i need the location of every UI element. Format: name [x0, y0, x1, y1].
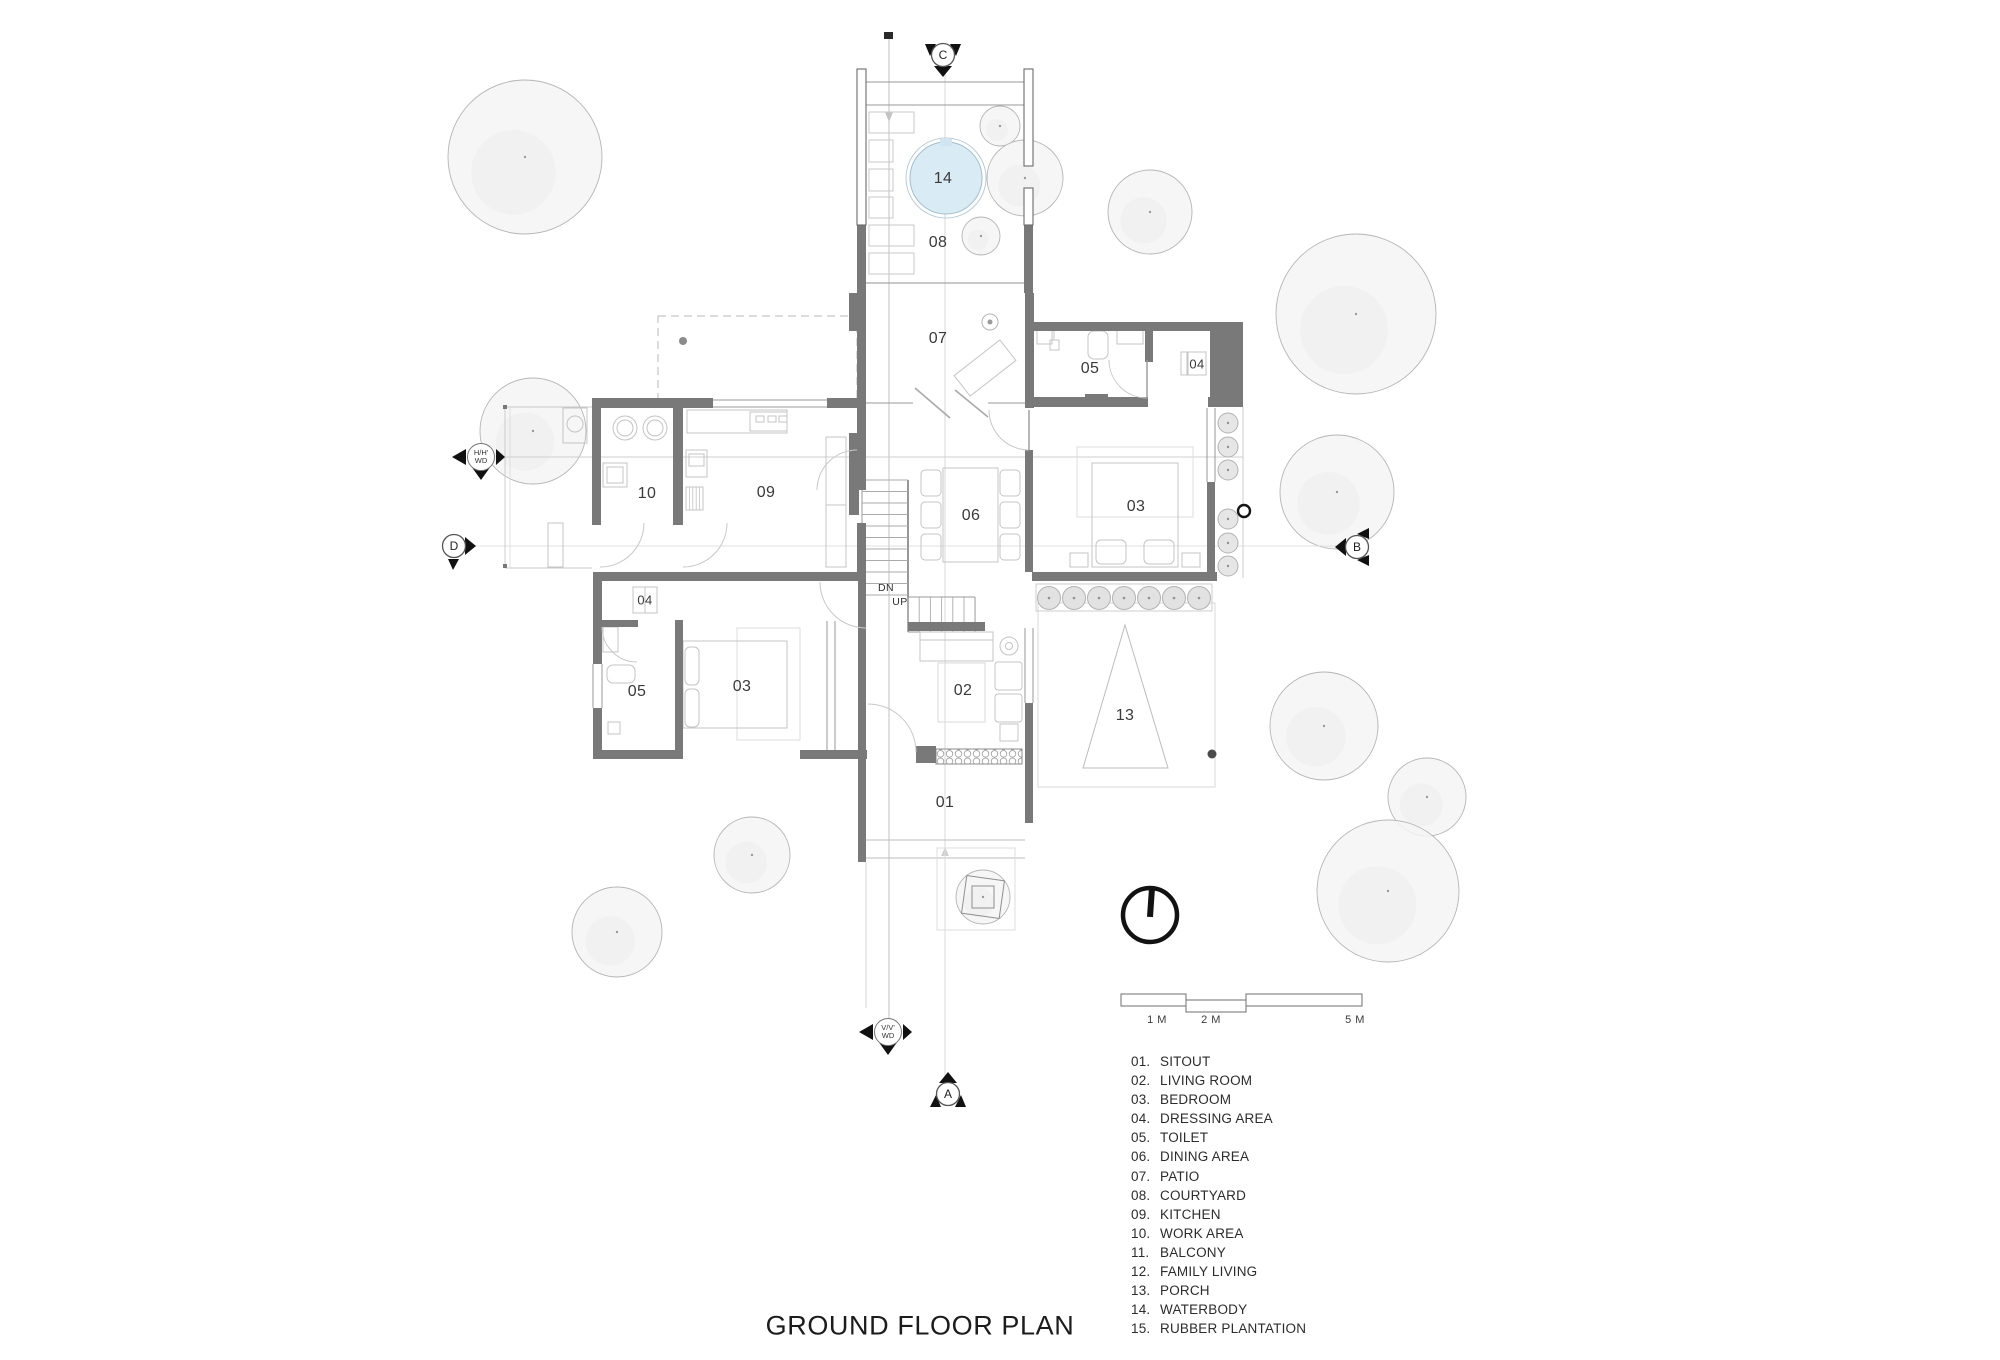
legend-item: 13.PORCH — [1131, 1281, 1306, 1300]
legend-item-label: COURTYARD — [1160, 1186, 1246, 1205]
tree-icon — [572, 887, 662, 977]
legend-item-number: 11. — [1131, 1243, 1160, 1262]
scale-bar — [1121, 994, 1362, 1012]
ref-marker-hh-line2: WD — [474, 457, 488, 465]
tree-icon — [1280, 435, 1394, 549]
legend-item-label: FAMILY LIVING — [1160, 1262, 1257, 1281]
legend-item: 14.WATERBODY — [1131, 1300, 1306, 1319]
room-label: DN — [878, 582, 894, 594]
floor-plan-sheet: GROUND FLOOR PLAN 01.SITOUT02.LIVING ROO… — [0, 0, 2000, 1360]
legend-item-number: 08. — [1131, 1186, 1160, 1205]
tree-icon — [1276, 234, 1436, 394]
room-label: 10 — [638, 485, 657, 503]
room-label: 06 — [962, 507, 981, 525]
scale-label-2m: 2 M — [1201, 1014, 1221, 1026]
north-compass-icon — [1123, 888, 1177, 942]
room-label: 13 — [1116, 707, 1135, 725]
legend-item: 07.PATIO — [1131, 1167, 1306, 1186]
legend-item-label: WORK AREA — [1160, 1224, 1244, 1243]
legend-item-number: 07. — [1131, 1167, 1160, 1186]
room-legend: 01.SITOUT02.LIVING ROOM03.BEDROOM04.DRES… — [1131, 1052, 1306, 1338]
tree-icon — [714, 817, 790, 893]
legend-item-number: 01. — [1131, 1052, 1160, 1071]
room-label: 04 — [1189, 357, 1204, 372]
legend-item: 05.TOILET — [1131, 1128, 1306, 1147]
legend-item-number: 09. — [1131, 1205, 1160, 1224]
section-marker-c-letter: C — [939, 48, 948, 62]
legend-item: 06.DINING AREA — [1131, 1147, 1306, 1166]
legend-item-number: 12. — [1131, 1262, 1160, 1281]
tree-icon — [962, 217, 1000, 255]
legend-item-label: BEDROOM — [1160, 1090, 1231, 1109]
room-label: 03 — [733, 678, 752, 696]
legend-item-label: RUBBER PLANTATION — [1160, 1319, 1306, 1338]
legend-item-label: KITCHEN — [1160, 1205, 1221, 1224]
room-label: 07 — [929, 330, 948, 348]
legend-item: 10.WORK AREA — [1131, 1224, 1306, 1243]
room-label: 08 — [929, 234, 948, 252]
legend-item-number: 02. — [1131, 1071, 1160, 1090]
room-label: UP — [892, 596, 907, 608]
room-label: 02 — [954, 682, 973, 700]
room-label: 03 — [1127, 498, 1146, 516]
legend-item-label: LIVING ROOM — [1160, 1071, 1252, 1090]
legend-item-label: BALCONY — [1160, 1243, 1226, 1262]
legend-item: 09.KITCHEN — [1131, 1205, 1306, 1224]
legend-item-label: DRESSING AREA — [1160, 1109, 1273, 1128]
section-marker-a-letter: A — [944, 1087, 952, 1101]
ref-marker-vv-text: V/V' WD — [881, 1024, 895, 1040]
legend-item: 15.RUBBER PLANTATION — [1131, 1319, 1306, 1338]
legend-item: 04.DRESSING AREA — [1131, 1109, 1306, 1128]
tree-icon — [1317, 820, 1459, 962]
legend-item-number: 14. — [1131, 1300, 1160, 1319]
legend-item-label: WATERBODY — [1160, 1300, 1247, 1319]
ref-marker-hh-text: H/H' WD — [474, 449, 488, 465]
legend-item-number: 03. — [1131, 1090, 1160, 1109]
room-label: 04 — [637, 593, 652, 608]
section-marker-d-letter: D — [450, 539, 459, 553]
page-title: GROUND FLOOR PLAN — [766, 1311, 1075, 1342]
room-label: 05 — [1081, 360, 1100, 378]
legend-item: 12.FAMILY LIVING — [1131, 1262, 1306, 1281]
tree-icon — [1108, 170, 1192, 254]
legend-item-label: SITOUT — [1160, 1052, 1210, 1071]
tree-icon — [448, 80, 602, 234]
legend-item-number: 10. — [1131, 1224, 1160, 1243]
legend-item-number: 13. — [1131, 1281, 1160, 1300]
legend-item-number: 04. — [1131, 1109, 1160, 1128]
legend-item-label: PATIO — [1160, 1167, 1200, 1186]
furniture-layer — [548, 314, 1206, 764]
tree-icon — [1270, 672, 1378, 780]
room-label: 09 — [757, 484, 776, 502]
section-marker-d — [443, 535, 477, 571]
scale-label-1m: 1 M — [1147, 1014, 1167, 1026]
legend-item: 01.SITOUT — [1131, 1052, 1306, 1071]
tree-icon — [980, 106, 1020, 146]
floor-plan-drawing — [0, 0, 2000, 1360]
room-label: 01 — [936, 794, 955, 812]
legend-item-number: 05. — [1131, 1128, 1160, 1147]
scale-label-5m: 5 M — [1345, 1014, 1365, 1026]
room-label: 14 — [934, 170, 953, 188]
legend-item: 11.BALCONY — [1131, 1243, 1306, 1262]
legend-item: 02.LIVING ROOM — [1131, 1071, 1306, 1090]
room-label: 05 — [628, 683, 647, 701]
legend-item: 08.COURTYARD — [1131, 1186, 1306, 1205]
legend-item-label: DINING AREA — [1160, 1147, 1249, 1166]
legend-item: 03.BEDROOM — [1131, 1090, 1306, 1109]
legend-item-number: 06. — [1131, 1147, 1160, 1166]
legend-item-label: PORCH — [1160, 1281, 1210, 1300]
ref-marker-vv-line2: WD — [881, 1032, 895, 1040]
legend-item-label: TOILET — [1160, 1128, 1208, 1147]
section-marker-b-letter: B — [1353, 540, 1361, 554]
legend-item-number: 15. — [1131, 1319, 1160, 1338]
